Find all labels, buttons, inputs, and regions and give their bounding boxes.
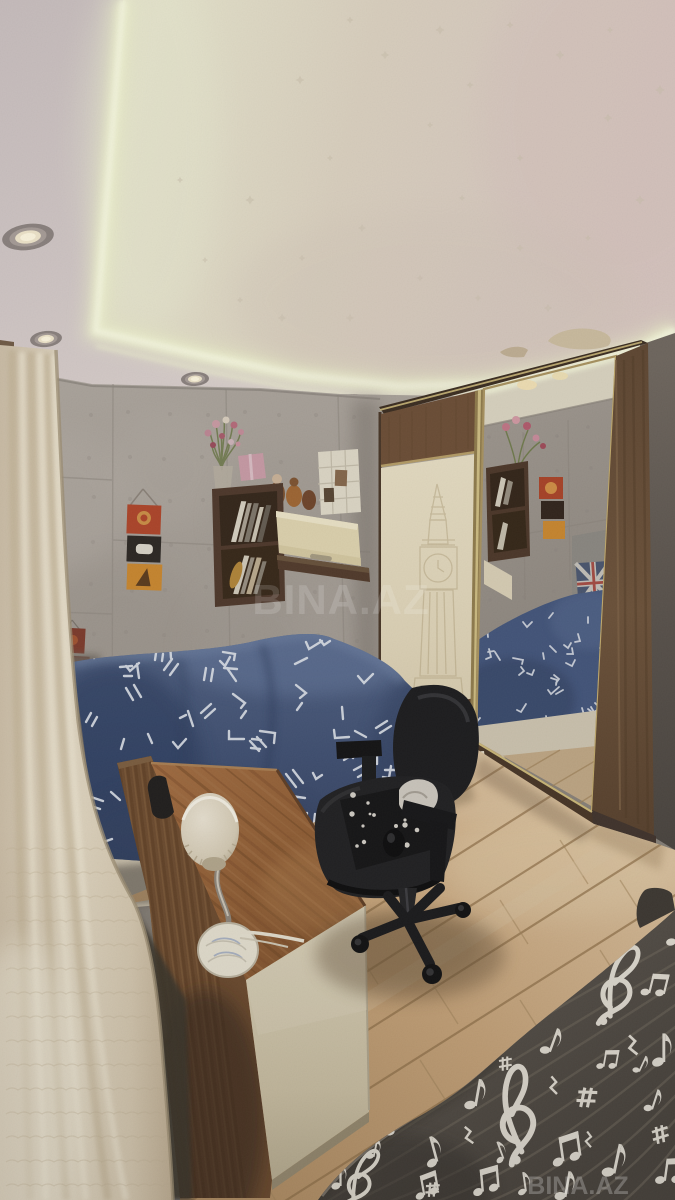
svg-text:BINA.AZ: BINA.AZ [527,1172,628,1200]
svg-text:BINA.AZ: BINA.AZ [252,576,429,623]
